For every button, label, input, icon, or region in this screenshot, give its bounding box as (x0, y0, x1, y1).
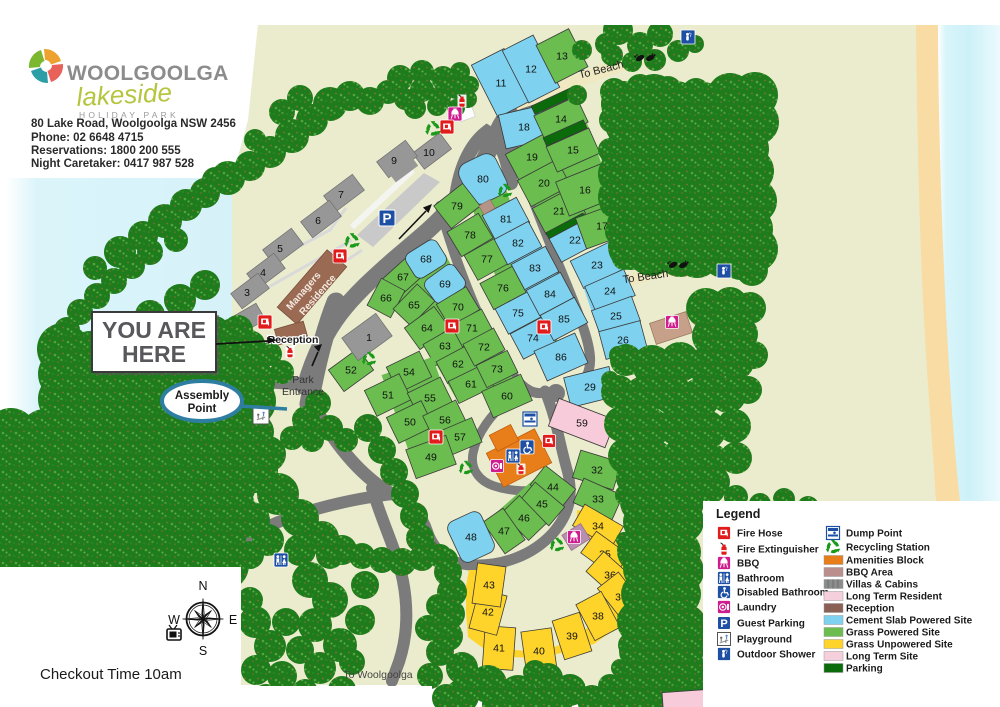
svg-text:45: 45 (536, 499, 548, 511)
svg-text:51: 51 (382, 390, 394, 402)
svg-text:14: 14 (555, 114, 567, 126)
svg-text:Amenities Block: Amenities Block (846, 556, 924, 567)
svg-text:Parking: Parking (846, 664, 883, 675)
svg-text:47: 47 (498, 526, 510, 538)
svg-text:50: 50 (404, 417, 416, 429)
svg-text:77: 77 (481, 254, 493, 266)
svg-text:62: 62 (452, 359, 464, 371)
svg-text:80: 80 (477, 174, 489, 186)
svg-text:55: 55 (424, 393, 436, 405)
svg-text:Assembly: Assembly (175, 390, 230, 402)
svg-text:75: 75 (512, 308, 524, 320)
svg-text:Grass Powered Site: Grass Powered Site (846, 628, 940, 639)
svg-text:56: 56 (439, 415, 451, 427)
svg-text:Long Term Site: Long Term Site (846, 652, 918, 663)
svg-text:P: P (382, 211, 391, 226)
svg-text:84: 84 (544, 289, 556, 301)
svg-text:33: 33 (592, 494, 604, 506)
svg-text:Dump Point: Dump Point (846, 529, 903, 540)
svg-text:69: 69 (439, 279, 451, 291)
svg-text:Cement Slab Powered Site: Cement Slab Powered Site (846, 616, 973, 627)
svg-text:29: 29 (584, 382, 596, 394)
svg-text:61: 61 (465, 379, 477, 391)
svg-text:22: 22 (569, 235, 581, 247)
svg-text:lakeside: lakeside (76, 77, 173, 112)
svg-text:86: 86 (555, 352, 567, 364)
svg-text:Playground: Playground (737, 635, 792, 646)
svg-text:HERE: HERE (122, 341, 186, 367)
svg-text:Disabled Bathroom: Disabled Bathroom (737, 588, 829, 599)
svg-text:82: 82 (512, 238, 524, 250)
svg-text:15: 15 (567, 145, 579, 157)
svg-text:Night Caretaker: 0417 987 528: Night Caretaker: 0417 987 528 (31, 158, 195, 170)
svg-text:83: 83 (529, 263, 541, 275)
svg-text:67: 67 (397, 272, 409, 284)
svg-text:41: 41 (493, 643, 505, 655)
svg-text:Fire Hose: Fire Hose (737, 529, 783, 540)
svg-text:74: 74 (527, 333, 539, 345)
svg-text:Point: Point (188, 403, 217, 415)
svg-text:1: 1 (366, 332, 372, 344)
svg-text:40: 40 (533, 646, 545, 658)
svg-text:48: 48 (465, 532, 477, 544)
svg-text:70: 70 (452, 302, 464, 314)
svg-text:16: 16 (579, 185, 591, 197)
svg-text:5: 5 (277, 243, 283, 255)
svg-text:P: P (720, 618, 727, 630)
svg-text:81: 81 (500, 214, 512, 226)
svg-text:BBQ Area: BBQ Area (846, 568, 893, 579)
svg-text:13: 13 (556, 51, 568, 63)
svg-text:10: 10 (423, 147, 435, 159)
svg-text:20: 20 (538, 178, 550, 190)
svg-text:60: 60 (501, 391, 513, 403)
svg-text:57: 57 (454, 432, 466, 444)
svg-text:3: 3 (244, 287, 250, 299)
svg-text:Villas & Cabins: Villas & Cabins (846, 580, 919, 591)
svg-text:49: 49 (425, 452, 437, 464)
svg-text:19: 19 (526, 152, 538, 164)
svg-text:6: 6 (315, 215, 321, 227)
svg-text:Legend: Legend (716, 507, 760, 521)
svg-text:Outdoor Shower: Outdoor Shower (737, 650, 815, 661)
svg-text:W: W (168, 613, 180, 627)
svg-text:66: 66 (380, 293, 392, 305)
svg-text:34: 34 (592, 521, 604, 533)
svg-text:Entrance: Entrance (282, 386, 324, 398)
svg-text:E: E (229, 613, 237, 627)
svg-text:59: 59 (576, 418, 588, 430)
svg-text:Grass Unpowered Site: Grass Unpowered Site (846, 640, 953, 651)
svg-text:9: 9 (391, 155, 397, 167)
svg-text:78: 78 (464, 230, 476, 242)
svg-text:12: 12 (525, 64, 537, 76)
svg-text:18: 18 (518, 122, 530, 134)
svg-text:72: 72 (478, 342, 490, 354)
svg-text:Long Term Resident: Long Term Resident (846, 592, 943, 603)
svg-text:80 Lake Road, Woolgoolga NSW 2: 80 Lake Road, Woolgoolga NSW 2456 (31, 118, 236, 130)
svg-text:76: 76 (497, 283, 509, 295)
svg-text:63: 63 (439, 341, 451, 353)
svg-text:Fire Extinguisher: Fire Extinguisher (737, 545, 819, 556)
svg-text:52: 52 (345, 365, 357, 377)
svg-text:54: 54 (403, 367, 415, 379)
svg-text:Park: Park (292, 374, 314, 386)
svg-text:Guest Parking: Guest Parking (737, 619, 805, 630)
svg-text:11: 11 (496, 78, 507, 90)
svg-text:64: 64 (421, 323, 433, 335)
svg-text:38: 38 (592, 611, 604, 623)
svg-text:To Woolgoolga: To Woolgoolga (343, 669, 412, 681)
svg-text:23: 23 (591, 260, 603, 272)
svg-text:68: 68 (420, 254, 432, 266)
svg-text:7: 7 (338, 189, 344, 201)
svg-text:N: N (198, 579, 207, 593)
svg-text:25: 25 (610, 311, 622, 323)
svg-text:39: 39 (566, 631, 578, 643)
svg-text:42: 42 (482, 607, 494, 619)
svg-text:Checkout Time 10am: Checkout Time 10am (40, 666, 182, 683)
svg-text:44: 44 (547, 482, 559, 494)
svg-text:21: 21 (553, 206, 565, 218)
svg-text:S: S (199, 644, 207, 658)
svg-text:73: 73 (491, 364, 503, 376)
svg-text:BBQ: BBQ (737, 559, 759, 570)
svg-text:Laundry: Laundry (737, 603, 777, 614)
svg-text:Bathroom: Bathroom (737, 574, 784, 585)
svg-text:85: 85 (558, 314, 570, 326)
svg-text:24: 24 (604, 286, 616, 298)
svg-text:46: 46 (518, 513, 530, 525)
svg-text:32: 32 (591, 465, 603, 477)
svg-text:43: 43 (483, 580, 495, 592)
svg-text:79: 79 (451, 201, 463, 213)
svg-text:YOU ARE: YOU ARE (102, 317, 206, 343)
svg-text:71: 71 (466, 323, 478, 335)
svg-text:Reception: Reception (846, 604, 894, 615)
svg-text:Phone: 02 6648 4715: Phone: 02 6648 4715 (31, 132, 144, 144)
svg-text:65: 65 (408, 300, 420, 312)
svg-text:Recycling Station: Recycling Station (846, 543, 930, 554)
svg-text:Reservations: 1800 200 555: Reservations: 1800 200 555 (31, 145, 181, 157)
